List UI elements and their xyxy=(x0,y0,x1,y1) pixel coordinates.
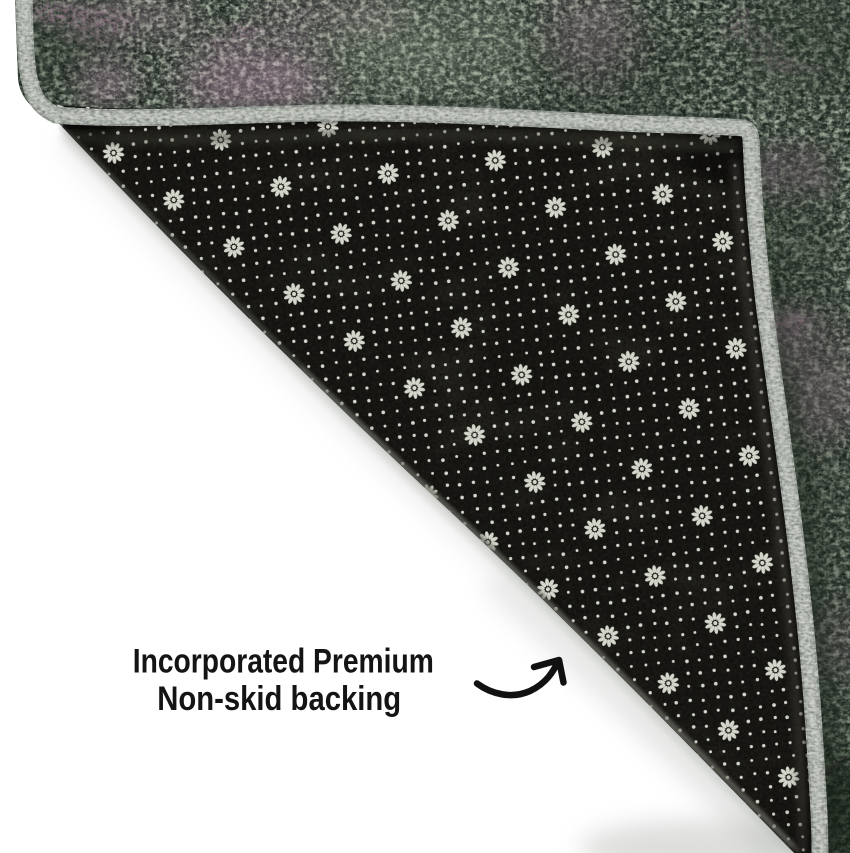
svg-text:Non-skid backing: Non-skid backing xyxy=(157,680,401,718)
svg-text:Incorporated Premium: Incorporated Premium xyxy=(133,643,434,681)
